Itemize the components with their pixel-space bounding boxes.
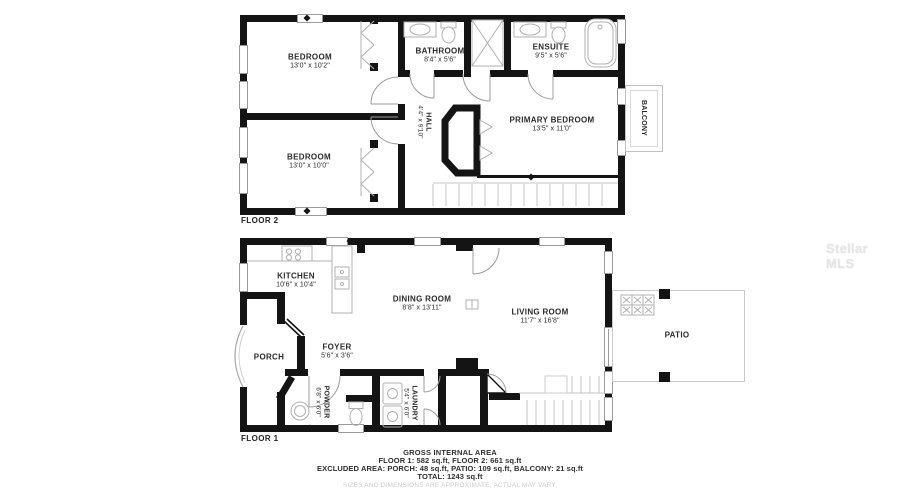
room-name: PORCH <box>254 354 284 363</box>
bathroom-sink-icon <box>410 24 430 35</box>
dryer-icon <box>383 406 402 427</box>
room-name: BEDROOM <box>288 54 332 63</box>
powder-diagonal-wall <box>279 377 292 399</box>
room-name: PRIMARY BEDROOM <box>510 117 595 126</box>
room-name: DINING ROOM <box>393 296 451 305</box>
room-name: ENSUITE <box>533 44 570 53</box>
floorplan-graphic <box>0 0 900 500</box>
room-name: FOYER <box>321 344 353 353</box>
bathtub-icon <box>585 19 616 67</box>
washer-icon <box>383 383 402 404</box>
room-dims: 5'6" x 3'6" <box>321 353 353 361</box>
room-dims: 10'6" x 10'4" <box>276 282 316 290</box>
room-label-patio: PATIO <box>665 332 690 341</box>
room-dims: 5'4" x 6'0" <box>402 385 409 420</box>
ensuite-toilet-icon <box>552 27 565 43</box>
mls-watermark: Stellar MLS <box>826 241 900 271</box>
floor2-plan <box>240 14 663 215</box>
ensuite-sink-icon <box>520 24 540 35</box>
powder-sink-icon <box>291 402 309 420</box>
room-label-laundry: LAUNDRY 5'4" x 6'0" <box>402 385 417 420</box>
room-label-primary-bedroom: PRIMARY BEDROOM 13'5" x 11'0" <box>510 117 595 134</box>
room-name: BATHROOM <box>416 48 465 57</box>
room-name: POWDER <box>322 386 330 419</box>
room-label-ensuite: ENSUITE 9'5" x 5'6" <box>533 44 570 61</box>
room-label-living-room: LIVING ROOM 11'7" x 16'8" <box>511 309 568 326</box>
room-label-hall: HALL 4'4" x 9'10" <box>416 105 431 138</box>
laundry-fixtures <box>383 383 402 427</box>
summary-total-area: TOTAL: 1243 sq.ft <box>317 473 583 481</box>
room-label-bedroom-2: BEDROOM 13'0" x 10'0" <box>287 154 331 171</box>
room-dims: 11'7" x 16'8" <box>511 318 568 326</box>
patio-post <box>659 289 670 299</box>
room-name: LAUNDRY <box>410 385 418 420</box>
room-label-balcony: BALCONY <box>639 100 647 136</box>
room-dims: 13'0" x 10'0" <box>287 163 331 171</box>
room-dims: 8'4" x 5'6" <box>416 57 465 65</box>
floor1-interior-walls <box>240 240 520 432</box>
entry-door-leaf <box>284 319 304 337</box>
room-label-dining-room: DINING ROOM 8'8" x 13'11" <box>393 296 451 313</box>
room-label-porch: PORCH <box>254 354 284 363</box>
room-name: KITCHEN <box>276 273 316 282</box>
primary-closet-doors <box>480 120 492 160</box>
summary-disclaimer: SIZES AND DIMENSIONS ARE APPROXIMATE, AC… <box>317 482 583 489</box>
floor1-tag: FLOOR 1 <box>241 434 278 443</box>
floorplan-page: BEDROOM 13'0" x 10'2" BEDROOM 13'0" x 10… <box>0 0 900 500</box>
floor2-stairwell-enclosure <box>445 108 477 173</box>
room-dims: 13'5" x 11'0" <box>510 126 595 134</box>
room-label-bathroom: BATHROOM 8'4" x 5'6" <box>416 48 465 65</box>
room-name: BEDROOM <box>287 154 331 163</box>
area-summary: GROSS INTERNAL AREA FLOOR 1: 582 sq.ft, … <box>317 449 583 489</box>
porch-curve <box>235 326 245 387</box>
room-dims: 13'0" x 10'2" <box>288 63 332 71</box>
powder-toilet-tank <box>349 402 363 409</box>
dining-fixture <box>466 300 478 309</box>
room-name: PATIO <box>665 332 690 341</box>
room-dims: 8'8" x 13'11" <box>393 305 451 313</box>
floor2-tag: FLOOR 2 <box>241 216 278 225</box>
room-label-kitchen: KITCHEN 10'6" x 10'4" <box>276 273 316 290</box>
bedroom1-closet-doors <box>361 21 374 69</box>
room-name: BALCONY <box>639 100 647 136</box>
bathroom-toilet-icon <box>442 27 455 43</box>
room-dims: 6'8" x 6'0" <box>314 386 321 419</box>
powder-toilet-icon <box>350 409 362 426</box>
floor1-stairs <box>519 376 605 425</box>
room-name: LIVING ROOM <box>511 309 568 318</box>
room-dims: 4'4" x 9'10" <box>416 105 423 138</box>
bedroom2-closet-doors <box>361 148 374 196</box>
floor2-stairs <box>433 183 618 206</box>
room-label-foyer: FOYER 5'6" x 3'6" <box>321 344 353 361</box>
patio-post <box>659 372 670 382</box>
room-label-bedroom-1: BEDROOM 13'0" x 10'2" <box>288 54 332 71</box>
room-dims: 9'5" x 5'6" <box>533 53 570 61</box>
room-label-powder: POWDER 6'8" x 6'0" <box>314 386 329 419</box>
room-name: HALL <box>424 105 432 138</box>
